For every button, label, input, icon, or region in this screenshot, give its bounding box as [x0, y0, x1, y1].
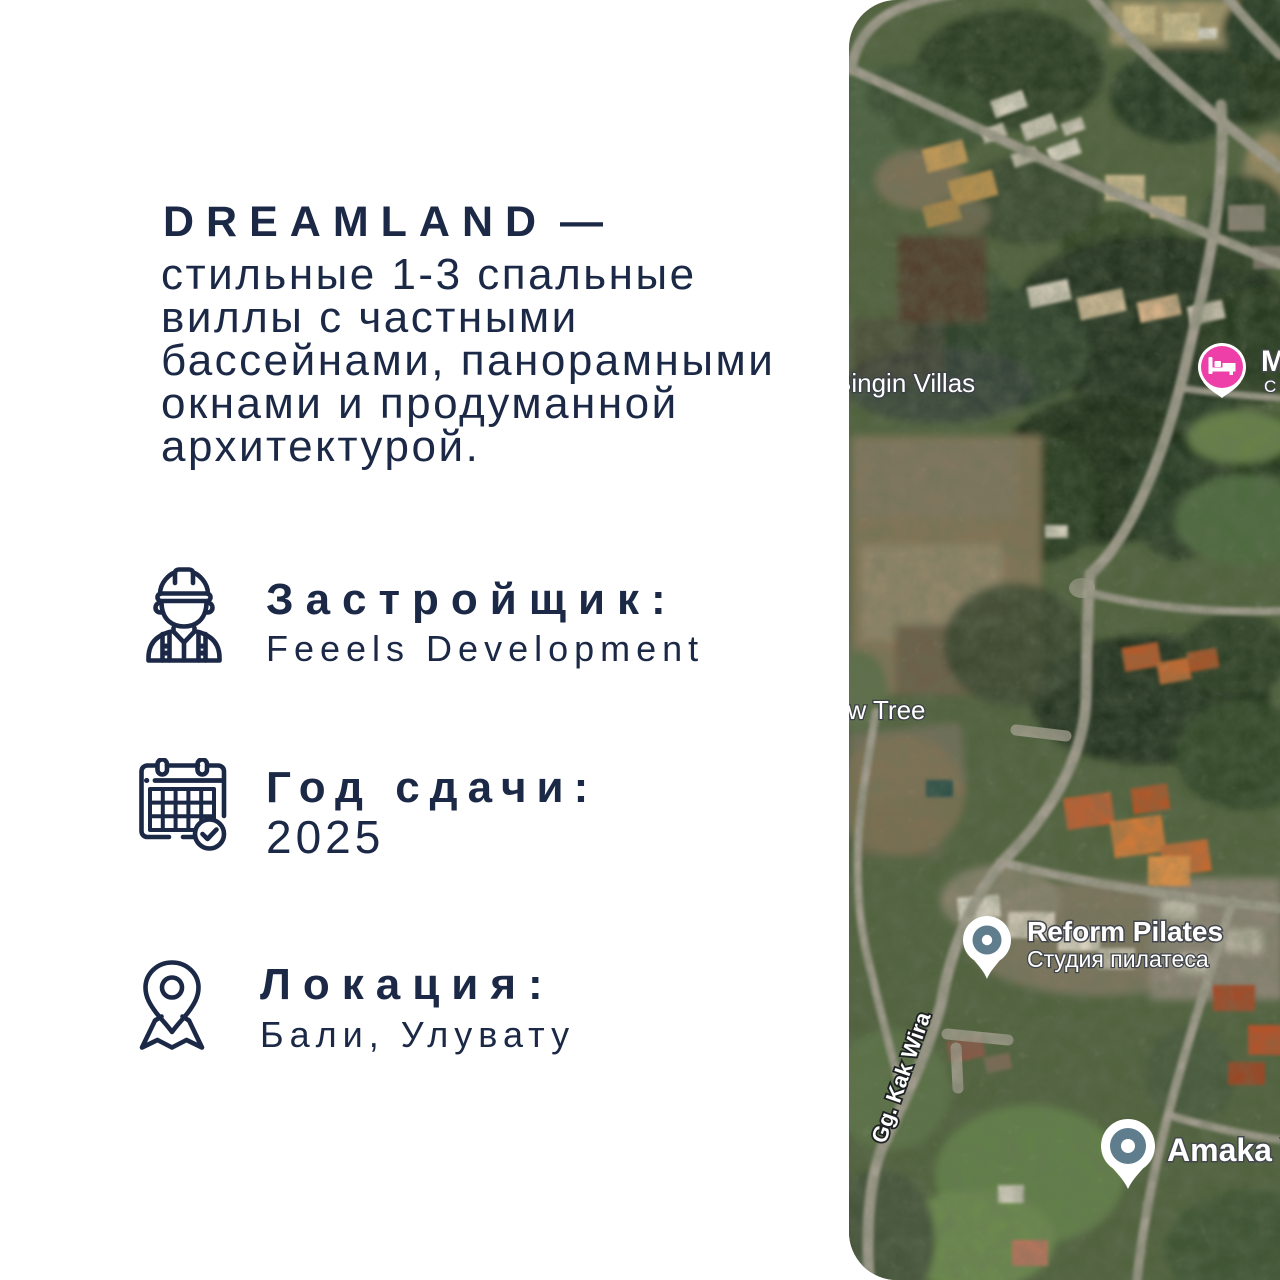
svg-text:Mo: Mo [1261, 345, 1280, 378]
svg-text:Amaka V: Amaka V [1167, 1132, 1280, 1168]
svg-text:Студия пилатеса: Студия пилатеса [1027, 946, 1209, 972]
svg-text:ew Tree: ew Tree [849, 695, 926, 725]
svg-text:Reform Pilates: Reform Pilates [1027, 916, 1223, 947]
svg-text:Bingin Villas: Bingin Villas [849, 368, 975, 398]
svg-text:C: C [1264, 377, 1276, 396]
